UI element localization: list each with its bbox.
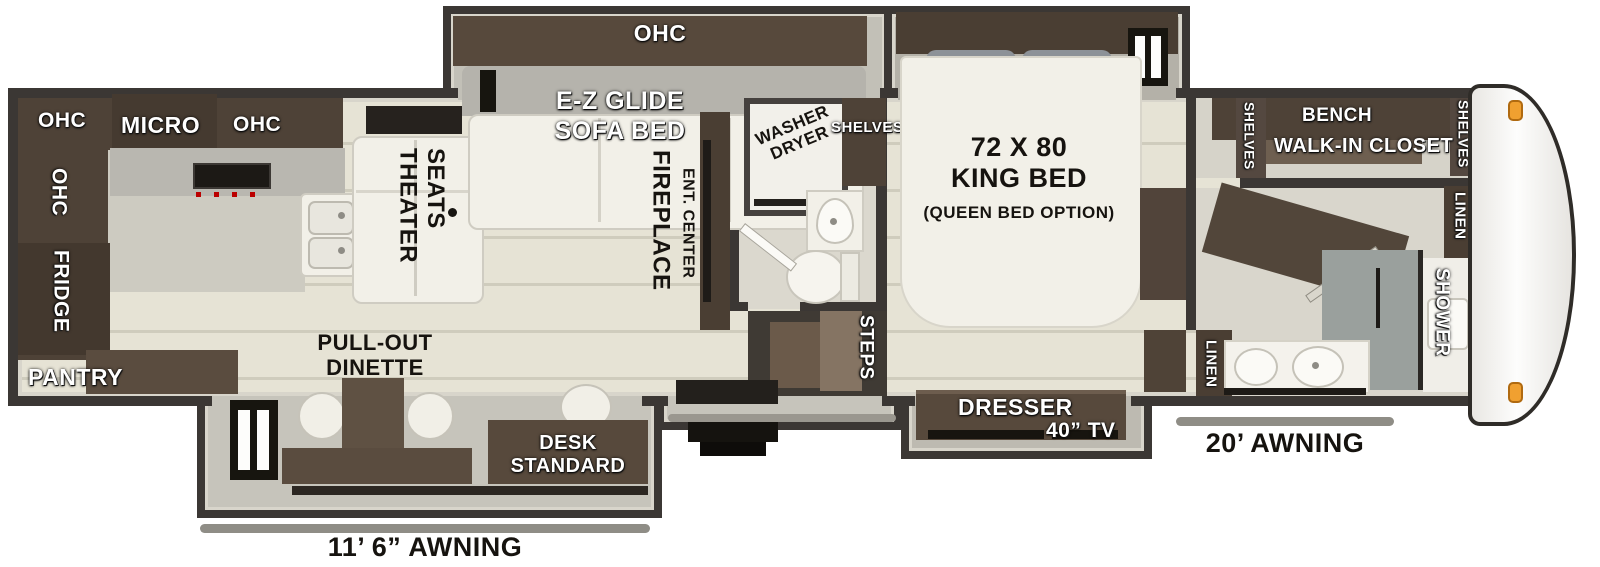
bedroom-linen-label: LINEN [1203,340,1218,388]
dinette-chair-right [406,392,454,440]
window-pane1 [238,410,250,470]
dinette-bench [282,448,472,484]
entry-grab-rail [668,414,896,422]
marker-light-bottom [1508,382,1523,403]
pantry-label: PANTRY [28,366,123,389]
closet-shelves-left-label: SHELVES [1242,102,1256,170]
rv-floorplan: OHC MICRO OHC OHC FRIDGE PANTRY THEATER … [0,0,1600,567]
slide-baseboard [292,486,648,495]
cooktop [193,163,271,189]
entry-steps-outer [688,422,778,442]
bath-bottom-wall-left [730,302,748,311]
walk-in-closet-label: WALK-IN CLOSET [1274,136,1453,156]
toilet [786,250,846,304]
vanity-drain [1312,362,1319,369]
sink-bowl-top [308,201,354,235]
marker-light-top [1508,100,1523,121]
cooktop-knobs [196,192,268,197]
fireplace-label: FIREPLACE [648,150,672,291]
bedroom-right-wall [1186,98,1196,330]
dresser-label: DRESSER [958,396,1073,419]
sink-drain-bottom [338,247,345,254]
bedroom-chest [1144,330,1186,392]
bench-label: BENCH [1302,106,1372,125]
sofa-ohc-label: OHC [453,22,867,45]
tv-label: 40” TV [1046,420,1116,441]
window-pane2 [257,410,269,470]
ohc-left-label: OHC [38,110,86,131]
tv-screen-strip [703,140,711,302]
ohc-side-label: OHC [48,168,69,216]
entry-steps-outer2 [700,442,766,456]
cupholder-dot [448,208,457,217]
bath-shelves-cabinet [842,98,886,186]
front-cap [1468,84,1576,426]
bath-sink-drain [830,218,837,225]
vanity-sink-left [1234,348,1278,386]
micro-label: MICRO [121,114,200,137]
vanity [1224,340,1370,394]
bath-shelves-label: SHELVES [831,120,903,135]
bath-sink [806,190,864,252]
bedroom-wardrobe [1140,188,1186,300]
ohc-right-label: OHC [233,114,281,135]
entry-threshold [676,380,778,404]
shower-label: SHOWER [1432,268,1451,357]
dinette-label: PULL-OUTDINETTE [300,330,450,381]
step-1 [770,322,820,388]
bedroom-window-pane2 [1151,36,1161,78]
fridge-label: FRIDGE [50,250,71,332]
shower-handle [1376,268,1380,328]
ent-center-label: ENT. CENTER [679,168,695,278]
tv-strip-left [928,430,1044,439]
front-awning-label: 20’ AWNING [1176,430,1394,458]
front-awning-bar [1176,417,1394,426]
king-bed-label: 72 X 80KING BED (QUEEN BED OPTION) [902,132,1136,225]
console-table [366,106,462,134]
dinette-window [230,400,278,480]
sink-drain-top [338,212,345,219]
dinette-chair-left [298,392,346,440]
vanity-base-shadow [1224,388,1366,395]
sink-bowl-bottom [308,237,354,269]
dinette-table [342,378,404,458]
steps-label: STEPS [856,315,875,380]
rear-awning-label: 11’ 6” AWNING [250,534,600,562]
theater-seats-label: THEATER SEATS [394,148,449,263]
front-linen-label: LINEN [1452,192,1467,240]
toilet-tank [840,252,860,302]
desk-label: DESKSTANDARD [492,432,644,478]
entertainment-center [700,112,730,330]
